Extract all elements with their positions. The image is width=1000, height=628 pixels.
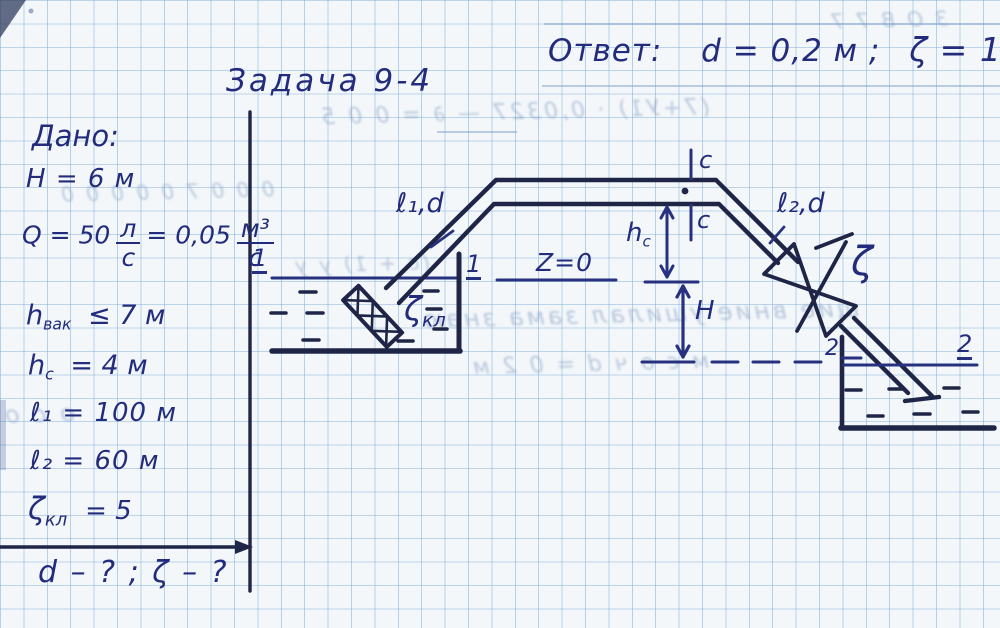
H-dimension-arrow — [677, 286, 689, 357]
label-H: H — [695, 298, 715, 324]
given-H: H = 6 м — [26, 166, 135, 192]
zeta-kl-subscript: кл — [45, 509, 67, 530]
section-1-left: 1 — [252, 246, 267, 274]
label-l2d: ℓ₂,d — [777, 190, 825, 217]
section-c-bottom: c — [697, 208, 710, 232]
answer-line: Ответ: d = 0,2 м ; ζ = 13 — [548, 33, 1000, 67]
given-l2: ℓ₂ = 60 м — [30, 448, 159, 474]
zeta-kl-symbol: ζ — [28, 491, 45, 527]
answer-zeta: ζ = 13 — [909, 30, 1000, 69]
hvak-subscript: вак — [43, 314, 71, 333]
given-zeta-kl: ζкл = 5 — [28, 494, 132, 529]
q-mid: = 0,05 — [146, 221, 231, 250]
section-c-top: c — [699, 148, 712, 172]
q-num2: м³ — [237, 216, 274, 244]
zeta-kl-diagram-symbol: ζ — [404, 289, 422, 328]
hc-dimension-arrow — [661, 207, 673, 277]
label-z0: Z=0 — [536, 250, 593, 275]
section-cc-marks — [682, 150, 691, 240]
section-1-right: 1 — [466, 252, 481, 280]
hvak-value: ≤ 7 м — [88, 300, 165, 331]
section-2-right: 2 — [957, 332, 972, 360]
answer-diameter: d = 0,2 м ; — [701, 33, 880, 69]
notebook-page: (7+У1) · 0,0327 — ∂ = 0 0 5 З О В 7 7 0 … — [0, 0, 1000, 628]
q-num1: л — [116, 216, 140, 244]
hvak-symbol: h — [26, 300, 43, 331]
given-hvak: hвак ≤ 7 м — [26, 302, 165, 332]
given-hc: hc = 4 м — [28, 352, 148, 382]
hc-dim-symbol: h — [626, 218, 642, 248]
label-l1d: ℓ₁,d — [396, 190, 444, 217]
label-hc: hc — [626, 220, 651, 249]
given-Q: Q = 50лс= 0,05м³с — [22, 216, 280, 270]
label-zeta-kl: ζкл — [404, 292, 446, 330]
answer-label: Ответ: — [548, 33, 662, 69]
section-2-left: 2 — [825, 338, 839, 360]
valve-icon — [764, 234, 856, 336]
hc-symbol: h — [28, 350, 45, 381]
zeta-kl-value: = 5 — [85, 496, 132, 526]
hc-subscript: c — [45, 364, 54, 383]
page-title: Задача 9-4 — [226, 66, 433, 97]
hc-dim-subscript: c — [642, 232, 650, 250]
given-heading: Дано: — [32, 122, 119, 151]
find-line: d – ? ; ζ – ? — [38, 558, 229, 588]
zeta-kl-diagram-subscript: кл — [422, 309, 446, 332]
label-valve-zeta: ζ — [851, 242, 873, 282]
hc-value: = 4 м — [70, 350, 147, 381]
foot-valve-strainer-icon — [343, 286, 402, 347]
given-l1: ℓ₁ = 100 м — [30, 400, 177, 426]
scan-corner-artifact — [0, 0, 26, 38]
q-lhs: Q = 50 — [22, 221, 110, 250]
q-den1: с — [116, 244, 140, 270]
